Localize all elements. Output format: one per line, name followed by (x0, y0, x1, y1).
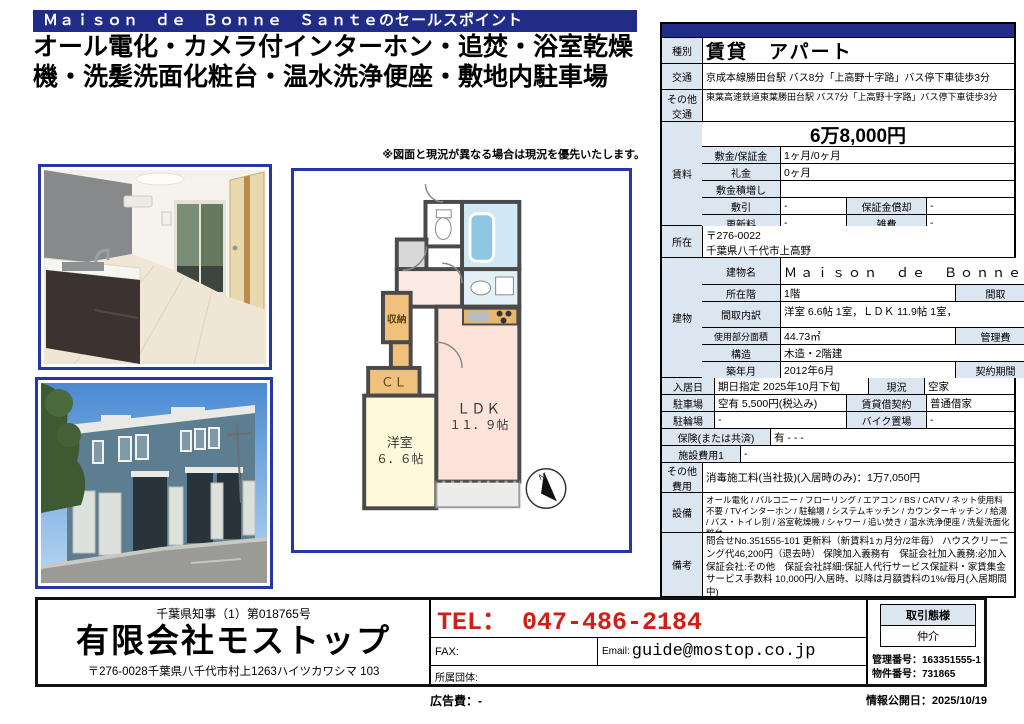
area-value: 44.73㎡ (780, 328, 955, 344)
guarantee-amort-value: - (926, 198, 1014, 214)
ad-fee: 広告費：- (430, 692, 482, 709)
deal-type-header: 取引態様 (880, 604, 976, 626)
company-name: 有限会社モストップ (76, 624, 391, 659)
bike-value: - (926, 412, 1014, 428)
lease-type-label: 賃貸借契約 (846, 395, 926, 411)
company-address: 〒276-0028千葉県八千代市村上1263ハイツカワシマ 103 (88, 663, 380, 679)
exterior-photo (35, 377, 273, 589)
contract-term-label: 契約期間 (955, 362, 1024, 378)
contact-block: TEL： 047-486-2184 FAX: Email: guide@most… (431, 600, 868, 684)
reference-numbers: 管理番号：163351555-1 物件番号：731865 (872, 654, 981, 681)
closet-label: 収納 (387, 312, 407, 325)
guarantee-amort-label: 保証金償却 (846, 198, 926, 214)
type-label: 種別 (662, 38, 702, 63)
property-table: 種別 賃貸 アパート 交通 京成本線勝田台駅 バス8分「上高野十字路」バス停下車… (660, 22, 1016, 598)
deal-type-box: 取引態様 仲介 (880, 604, 976, 647)
row-other-access: その他 交通 東葉高速鉄道東葉勝田台駅 バス7分「上高野十字路」バス停下車徒歩3… (662, 89, 1014, 121)
row-type: 種別 賃貸 アパート (662, 37, 1014, 63)
row-bicycle: 駐輪場 - バイク置場 - (662, 411, 1014, 428)
building-name-label: 建物名 (702, 258, 780, 284)
floorplan: 収納 ＣＬ ＬＤＫ １１．９帖 洋室 ６．６帖 N (291, 168, 632, 553)
equipment-value: オール電化 / バルコニー / フローリング / エアコン / BS / CAT… (702, 493, 1014, 532)
location-postal: 〒276-0022 (706, 228, 1011, 243)
row-rent-block: 賃料 6万8,000円 敷金/保証金 1ヶ月/0ヶ月 礼金 0ヶ月 敷金積増し … (662, 121, 1014, 225)
remarks-value: 問合せNo.351555-101 更新料（新賃料1ヵ月分/2年毎） ハウスクリー… (702, 533, 1014, 596)
row-equipment: 設備 オール電化 / バルコニー / フローリング / エアコン / BS / … (662, 492, 1014, 532)
compass-n-label: N (537, 471, 546, 483)
access-value: 京成本線勝田台駅 バス8分「上高野十字路」バス停下車徒歩3分 (702, 64, 1014, 89)
ldk-size-label: １１．９帖 (449, 418, 508, 432)
listing-flyer: Ｍａｉｓｏｎ ｄｅ Ｂｏｎｎｅ Ｓａｎｔｅのセールスポイント オール電化・カメラ… (0, 0, 1024, 724)
lease-type-value: 普通借家 (926, 395, 1014, 411)
type-value: 賃貸 アパート (702, 38, 1014, 63)
deposit-value: 1ヶ月/0ヶ月 (780, 147, 1014, 163)
rent-label: 賃料 (662, 122, 702, 225)
row-access: 交通 京成本線勝田台駅 バス8分「上高野十字路」バス停下車徒歩3分 (662, 63, 1014, 89)
title-bar: Ｍａｉｓｏｎ ｄｅ Ｂｏｎｎｅ Ｓａｎｔｅのセールスポイント (33, 10, 637, 32)
location-address: 千葉県八千代市上高野 (706, 243, 1011, 257)
insurance-value: 有 - - - (770, 429, 1014, 445)
deposit-increase-value (780, 181, 1014, 197)
room-label: 洋室 (387, 435, 413, 450)
sales-points-text: オール電化・カメラ付インターホン・追焚・浴室乾燥機・洗髪洗面化粧台・温水洗浄便座… (33, 33, 665, 92)
shikibiki-label: 敷引 (702, 198, 780, 214)
remarks-label: 備考 (662, 533, 702, 596)
parking-value: 空有 5,500円(税込み) (714, 395, 846, 411)
other-access-label: その他 交通 (662, 90, 702, 121)
deposit-label: 敷金/保証金 (702, 147, 780, 163)
floor-value: 1階 (780, 285, 955, 301)
current-label: 現況 (868, 378, 924, 394)
madori-label: 間取 (955, 285, 1024, 301)
floorplan-disclaimer: ※図面と現況が異なる場合は現況を優先いたします。 (365, 146, 645, 162)
org-field: 所属団体: (431, 666, 866, 684)
bicycle-label: 駐輪場 (662, 412, 714, 428)
facility-cost-value: - (740, 446, 1014, 462)
equipment-label: 設備 (662, 493, 702, 532)
built-value: 2012年6月 (780, 362, 955, 378)
cl-label: ＣＬ (381, 375, 407, 390)
building-label: 建物 (662, 258, 702, 377)
exterior-photo-graphic (41, 383, 267, 583)
deal-type-value: 仲介 (880, 626, 976, 647)
interior-photo-graphic (44, 170, 266, 364)
building-name-value: Ｍａｉｓｏｎ ｄｅ Ｂｏｎｎｅ Ｓａｎｔｅ (780, 258, 1024, 284)
property-number: 物件番号：731865 (872, 668, 981, 682)
structure-label: 構造 (702, 345, 780, 361)
room-size-label: ６．６帖 (376, 452, 424, 466)
current-value: 空家 (924, 378, 1014, 394)
move-in-label: 入居日 (662, 378, 714, 394)
license-number: 千葉県知事（1）第018765号 (156, 605, 311, 622)
structure-value: 木造・2階建 (780, 345, 1024, 361)
row-facility-cost: 施設費用1 - (662, 445, 1014, 462)
row-building-block: 建物 建物名 Ｍａｉｓｏｎ ｄｅ Ｂｏｎｎｅ Ｓａｎｔｅ 所在階 1階 間取 １… (662, 257, 1014, 377)
row-other-cost: その他 費用 消毒施工料(当社扱)(入居時のみ)：1万7,050円 (662, 462, 1014, 492)
key-money-label: 礼金 (702, 164, 780, 180)
madori-detail-label: 間取内訳 (702, 302, 780, 327)
other-cost-value: 消毒施工料(当社扱)(入居時のみ)：1万7,050円 (702, 463, 1014, 492)
fax-field: FAX: (431, 638, 598, 665)
parking-label: 駐車場 (662, 395, 714, 411)
shikibiki-value: - (780, 198, 846, 214)
move-in-value: 期日指定 2025年10月下旬 (714, 378, 868, 394)
bicycle-value: - (714, 412, 846, 428)
table-header-bar (662, 24, 1014, 37)
access-label: 交通 (662, 64, 702, 89)
rent-price: 6万8,000円 (702, 122, 1014, 146)
footer: 千葉県知事（1）第018765号 有限会社モストップ 〒276-0028千葉県八… (35, 597, 987, 687)
deal-block: 取引態様 仲介 管理番号：163351555-1 物件番号：731865 (868, 600, 984, 684)
email-address[interactable]: guide@mostop.co.jp (632, 642, 816, 661)
row-move-in: 入居日 期日指定 2025年10月下旬 現況 空家 (662, 377, 1014, 394)
floor-label: 所在階 (702, 285, 780, 301)
location-value: 〒276-0022 千葉県八千代市上高野 (702, 226, 1014, 257)
ldk-label: ＬＤＫ (457, 400, 501, 416)
area-label: 使用部分面積 (702, 328, 780, 344)
madori-detail-value: 洋室 6.6帖 1室，ＬＤＫ 11.9帖 1室， (780, 302, 1024, 327)
other-cost-label: その他 費用 (662, 463, 702, 492)
tel-number[interactable]: TEL： 047-486-2184 (431, 600, 866, 638)
email-label: Email: (602, 646, 630, 657)
compass-icon: N (526, 469, 566, 509)
management-number: 管理番号：163351555-1 (872, 654, 981, 668)
row-insurance: 保険(または共済) 有 - - - (662, 428, 1014, 445)
built-label: 築年月 (702, 362, 780, 378)
publish-date: 情報公開日：2025/10/19 (866, 692, 987, 708)
row-remarks: 備考 問合せNo.351555-101 更新料（新賃料1ヵ月分/2年毎） ハウス… (662, 532, 1014, 596)
bike-label: バイク置場 (846, 412, 926, 428)
mgmt-fee-label: 管理費 (955, 328, 1024, 344)
location-label: 所在 (662, 226, 702, 257)
email-field[interactable]: Email: guide@mostop.co.jp (598, 638, 866, 665)
other-access-value: 東葉高速鉄道東葉勝田台駅 バス7分「上高野十字路」バス停下車徒歩3分 (702, 90, 1014, 121)
facility-cost-label: 施設費用1 (662, 446, 740, 462)
row-location: 所在 〒276-0022 千葉県八千代市上高野 (662, 225, 1014, 257)
floorplan-graphic: 収納 ＣＬ ＬＤＫ １１．９帖 洋室 ６．６帖 N (297, 174, 632, 553)
agency-block: 千葉県知事（1）第018765号 有限会社モストップ 〒276-0028千葉県八… (38, 600, 431, 684)
row-parking: 駐車場 空有 5,500円(税込み) 賃貸借契約 普通借家 (662, 394, 1014, 411)
deposit-increase-label: 敷金積増し (702, 181, 780, 197)
interior-photo (38, 164, 272, 370)
key-money-value: 0ヶ月 (780, 164, 1014, 180)
insurance-label: 保険(または共済) (662, 429, 770, 445)
